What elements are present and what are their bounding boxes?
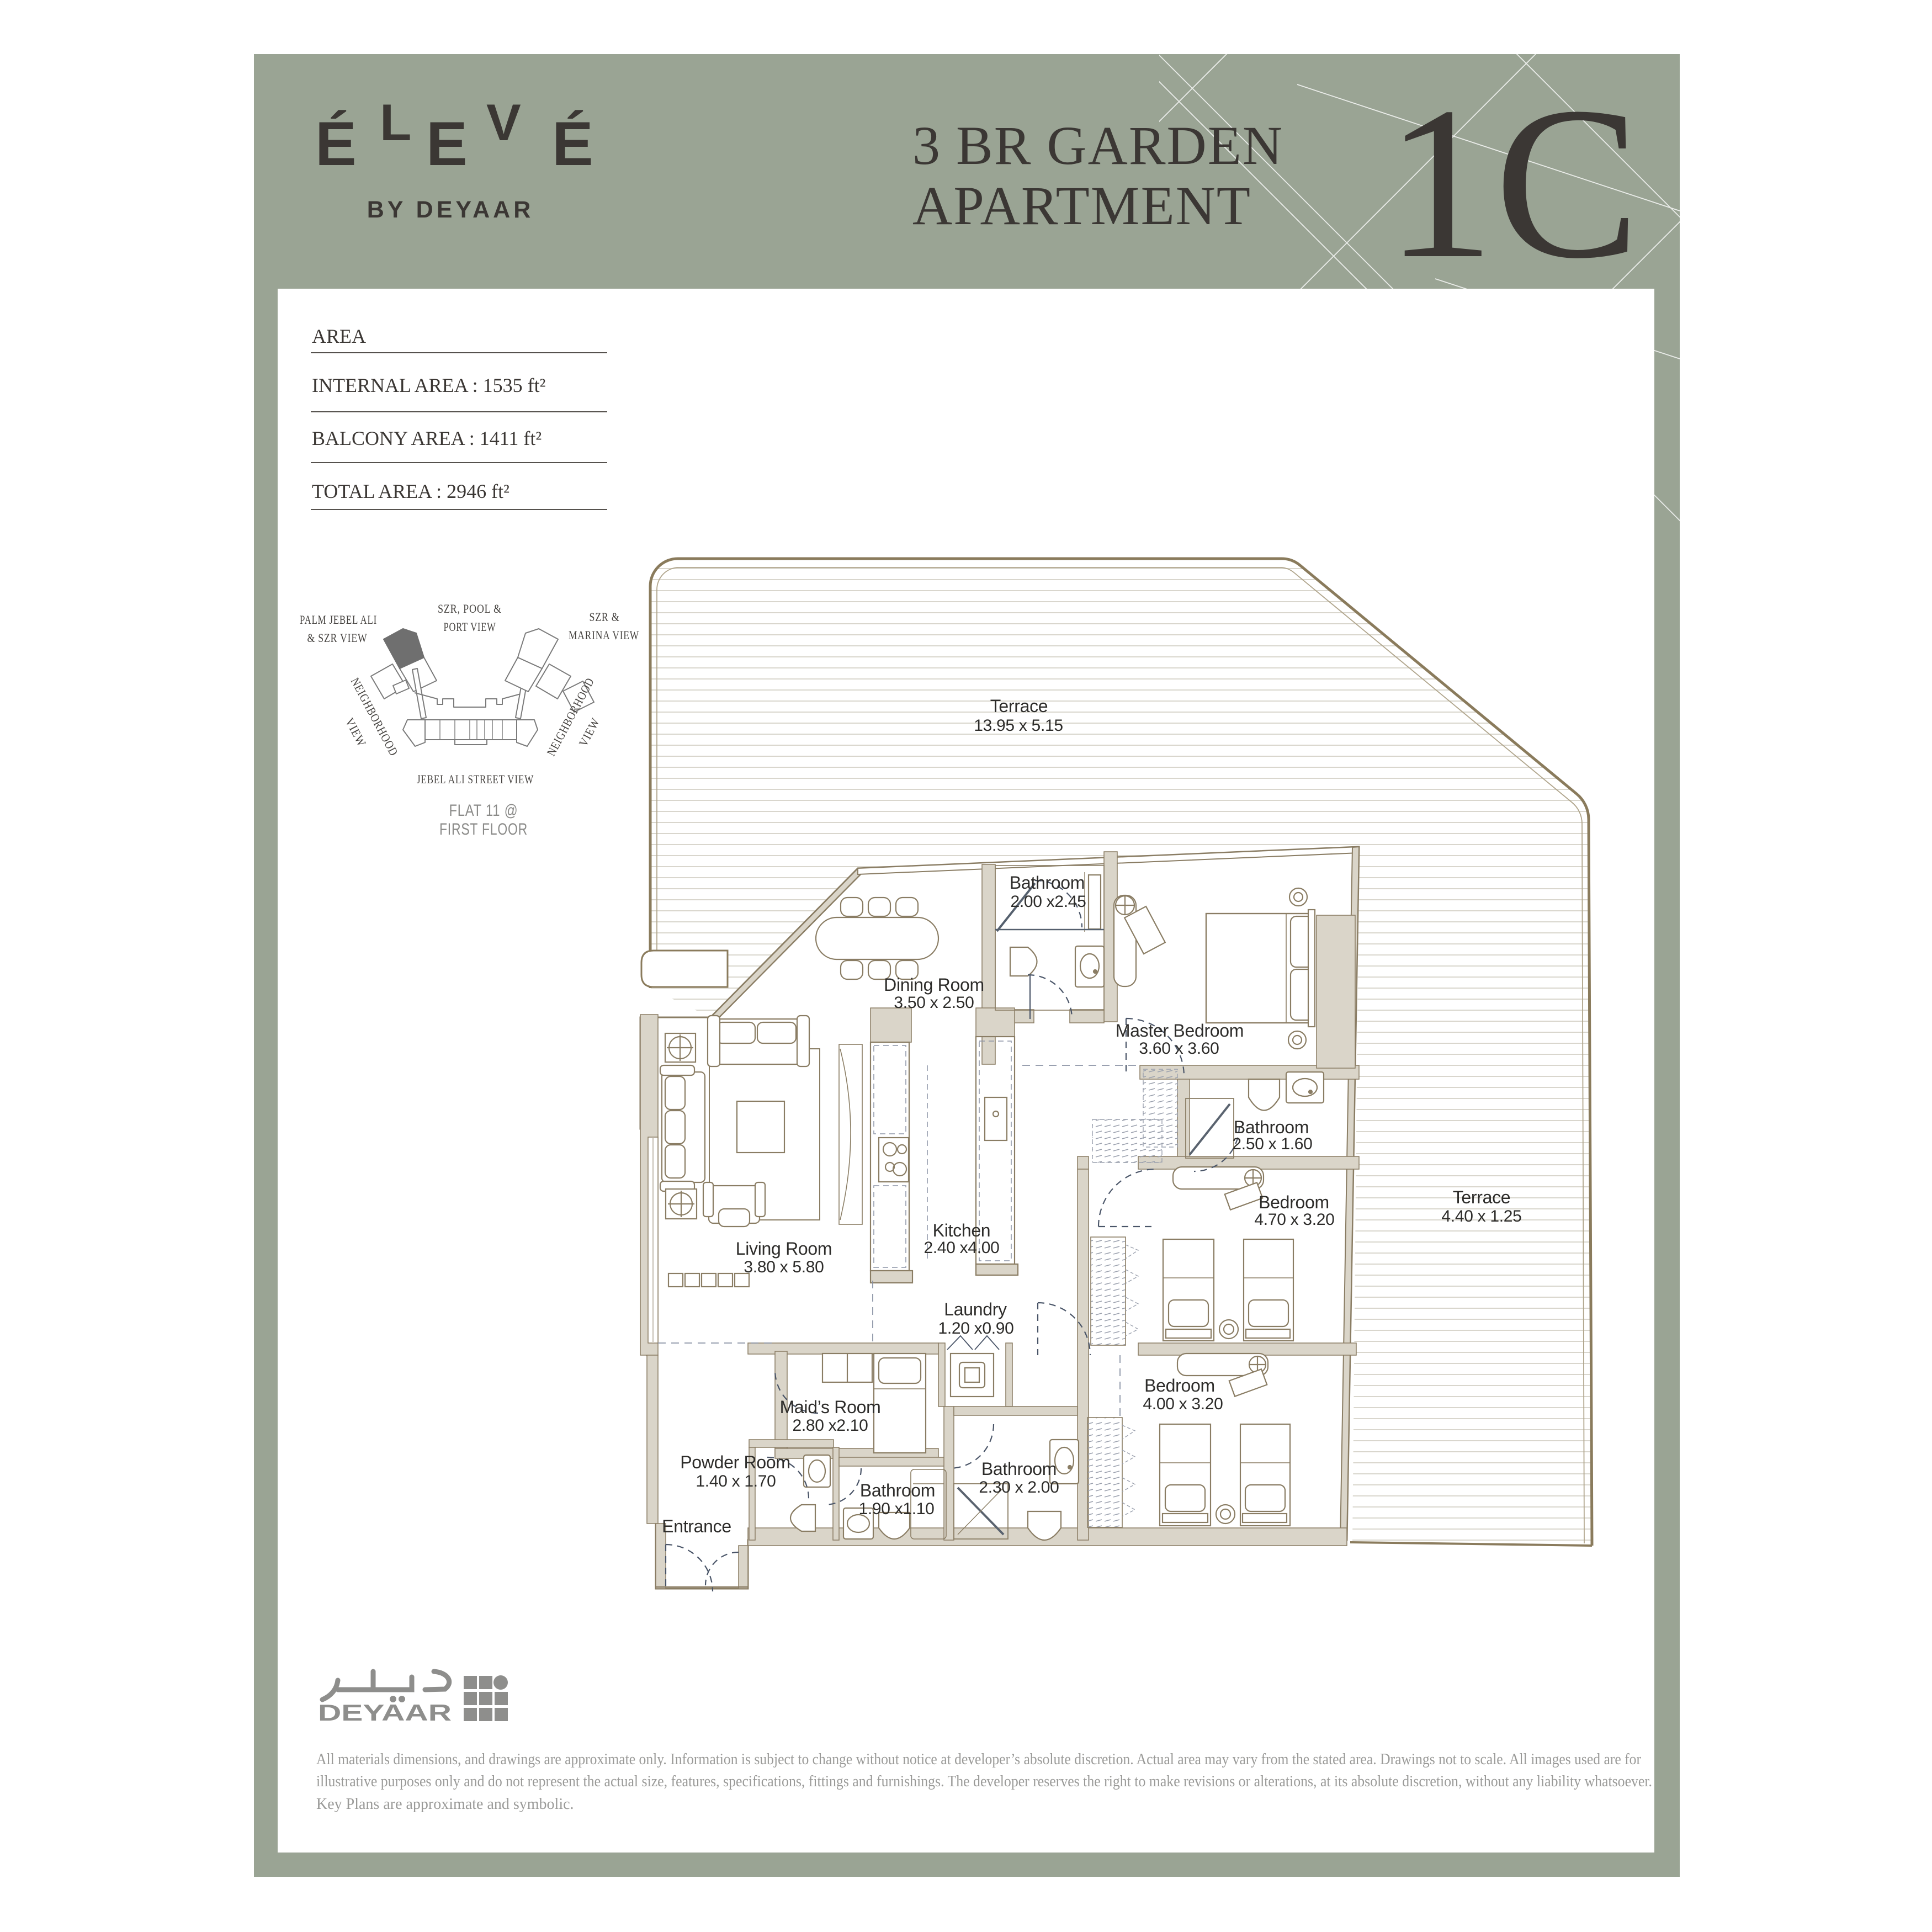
svg-text:MARINA VIEW: MARINA VIEW [569,628,639,642]
svg-text:BALCONY AREA : 1411 ft²: BALCONY AREA : 1411 ft² [312,427,542,449]
svg-text:Bedroom: Bedroom [1259,1192,1329,1212]
svg-text:DEYAAR: DEYAAR [318,1700,452,1726]
svg-text:Bathroom: Bathroom [860,1480,935,1500]
svg-text:Bathroom: Bathroom [1010,873,1085,893]
svg-text:1C: 1C [1386,62,1640,304]
svg-text:JEBEL ALI STREET VIEW: JEBEL ALI STREET VIEW [417,772,534,786]
svg-text:Key Plans are approximate and: Key Plans are approximate and symbolic. [316,1796,574,1813]
svg-text:Entrance: Entrance [662,1516,731,1536]
svg-text:1.90 x1.10: 1.90 x1.10 [858,1500,934,1518]
svg-text:APARTMENT: APARTMENT [912,175,1251,236]
svg-text:BY DEYAAR: BY DEYAAR [367,197,534,223]
svg-text:É: É [315,109,357,178]
svg-text:3.60 x 3.60: 3.60 x 3.60 [1139,1039,1219,1058]
svg-text:SZR &: SZR & [590,610,620,624]
svg-text:Terrace: Terrace [990,696,1048,716]
svg-text:2.80 x2.10: 2.80 x2.10 [792,1416,868,1435]
svg-text:Master Bedroom: Master Bedroom [1116,1021,1244,1041]
svg-text:AREA: AREA [312,325,366,347]
svg-text:TOTAL AREA : 2946 ft²: TOTAL AREA : 2946 ft² [312,480,509,502]
svg-text:Living Room: Living Room [736,1239,832,1259]
svg-text:Powder Room: Powder Room [680,1452,790,1472]
svg-text:1.20 x0.90: 1.20 x0.90 [938,1319,1013,1337]
svg-text:V: V [486,93,521,151]
svg-text:3 BR GARDEN: 3 BR GARDEN [912,115,1283,176]
svg-text:INTERNAL AREA : 1535 ft²: INTERNAL AREA : 1535 ft² [312,374,545,396]
svg-text:PALM JEBEL ALI: PALM JEBEL ALI [300,613,377,627]
svg-text:Maid’s Room: Maid’s Room [780,1397,881,1417]
svg-text:E: E [426,109,468,178]
svg-text:2.40 x4.00: 2.40 x4.00 [923,1239,999,1257]
svg-text:3.80 x 5.80: 3.80 x 5.80 [744,1258,824,1276]
svg-text:PORT VIEW: PORT VIEW [444,620,496,634]
svg-text:Bathroom: Bathroom [981,1459,1057,1479]
svg-text:SZR, POOL &: SZR, POOL & [438,602,502,615]
svg-text:Bedroom: Bedroom [1144,1376,1215,1395]
svg-text:L: L [380,93,411,151]
svg-text:4.40 x 1.25: 4.40 x 1.25 [1441,1207,1521,1225]
svg-text:Dining Room: Dining Room [884,975,984,995]
svg-text:2.50 x 1.60: 2.50 x 1.60 [1232,1135,1312,1153]
svg-text:13.95 x 5.15: 13.95 x 5.15 [974,716,1063,735]
svg-text:& SZR VIEW: & SZR VIEW [307,631,368,645]
svg-text:FLAT 11 @: FLAT 11 @ [449,802,518,820]
svg-text:illustrative purposes only and: illustrative purposes only and do not re… [316,1773,1652,1790]
svg-text:Terrace: Terrace [1453,1187,1511,1207]
svg-text:Laundry: Laundry [944,1299,1007,1319]
svg-text:1.40 x 1.70: 1.40 x 1.70 [696,1472,776,1490]
svg-text:É: É [552,109,593,178]
svg-text:All materials dimensions, and: All materials dimensions, and drawings a… [316,1751,1642,1768]
svg-text:4.70 x 3.20: 4.70 x 3.20 [1254,1211,1334,1229]
svg-text:4.00 x 3.20: 4.00 x 3.20 [1143,1395,1223,1413]
svg-text:3.50 x 2.50: 3.50 x 2.50 [894,994,974,1012]
svg-text:2.30 x 2.00: 2.30 x 2.00 [979,1478,1059,1496]
svg-text:FIRST FLOOR: FIRST FLOOR [439,820,528,838]
svg-text:Kitchen: Kitchen [933,1220,991,1240]
svg-text:Bathroom: Bathroom [1234,1117,1309,1137]
svg-text:2.00 x2.45: 2.00 x2.45 [1010,893,1086,911]
